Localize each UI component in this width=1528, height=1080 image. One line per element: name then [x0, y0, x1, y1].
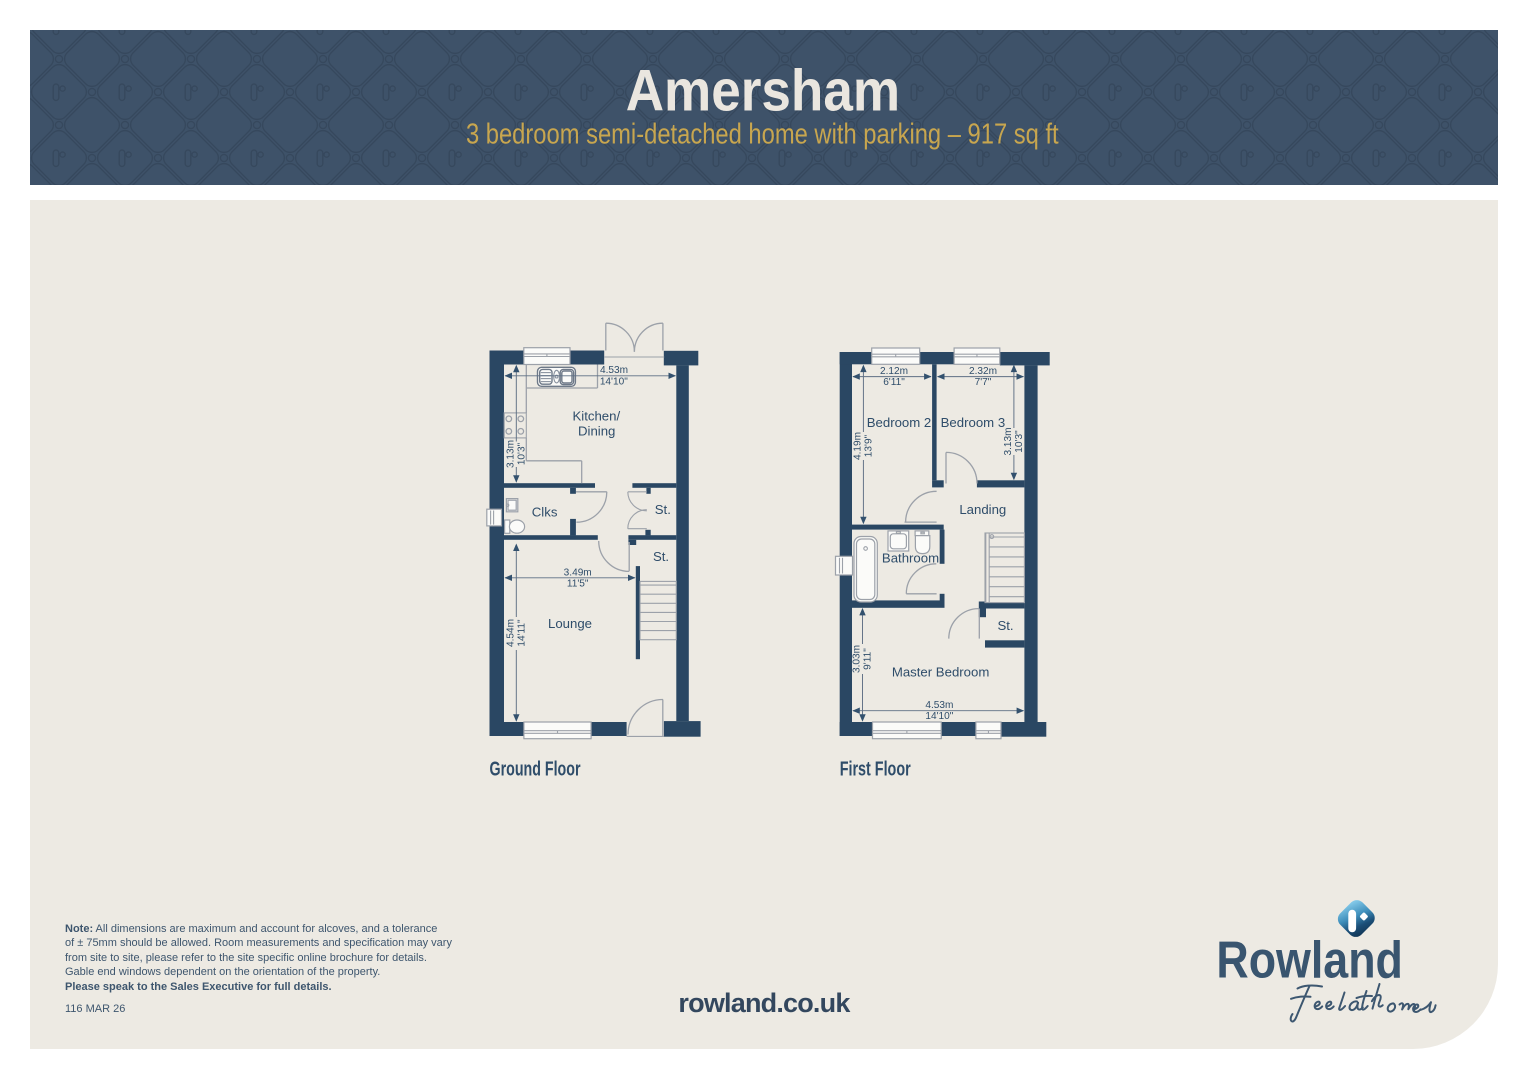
svg-text:Rowland: Rowland [1216, 931, 1403, 989]
